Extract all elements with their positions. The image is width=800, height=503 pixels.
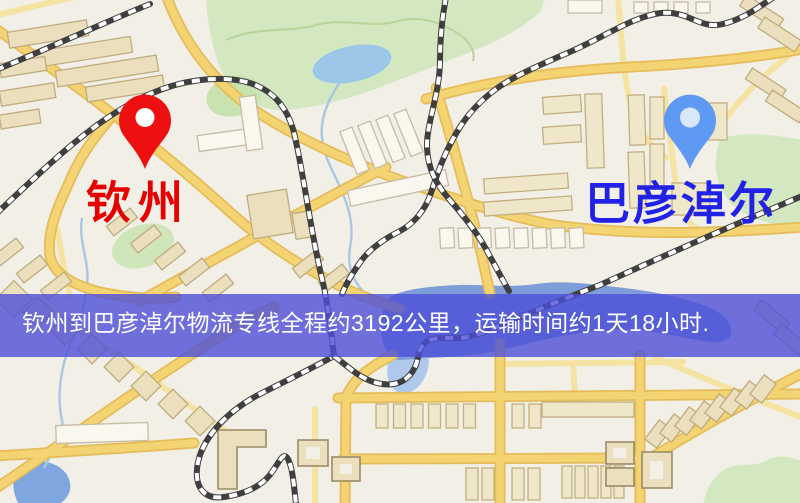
origin-city-label: 钦州 [86, 181, 190, 226]
map-canvas[interactable] [0, 0, 800, 503]
route-info-text: 钦州到巴彦淖尔物流专线全程约3192公里，运输时间约1天18小时. [22, 310, 709, 336]
destination-city-label: 巴彦淖尔 [585, 182, 777, 227]
map-screenshot: 钦州 巴彦淖尔 钦州到巴彦淖尔物流专线全程约3192公里，运输时间约1天18小时… [0, 0, 800, 503]
red-pin-hole [136, 108, 155, 127]
blue-pin-hole [680, 108, 700, 128]
route-info-banner: 钦州到巴彦淖尔物流专线全程约3192公里，运输时间约1天18小时. [0, 294, 800, 357]
